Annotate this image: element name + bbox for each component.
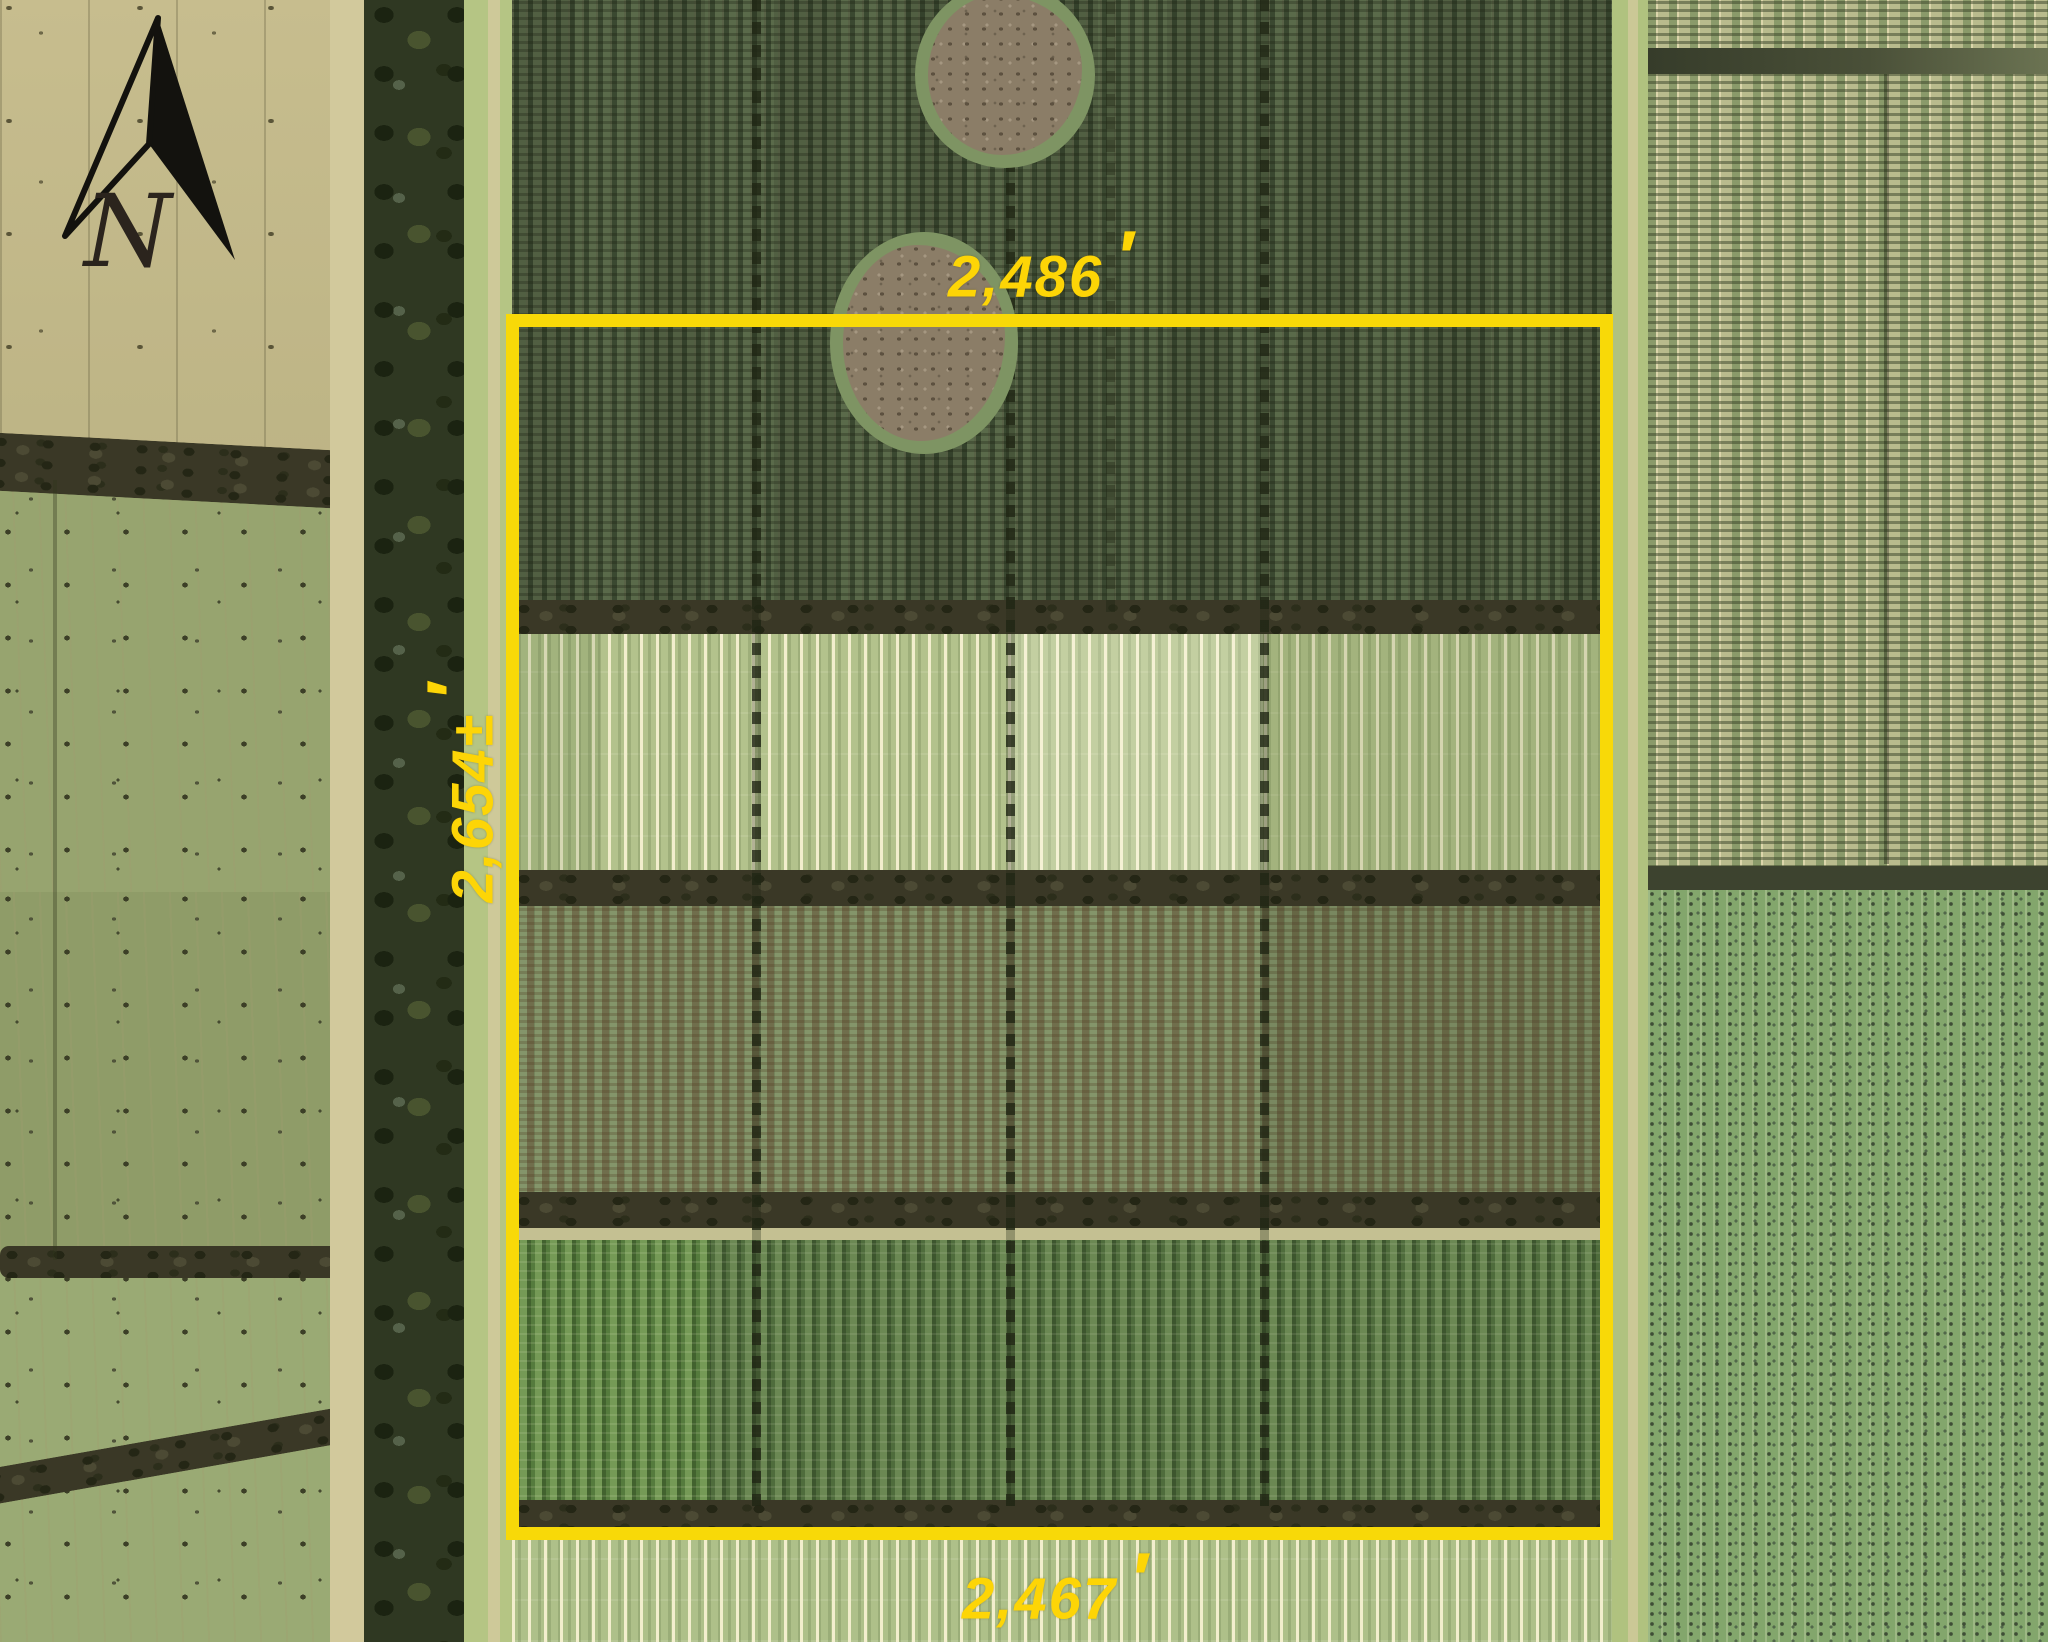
dimension-south-value: 2,467: [962, 1567, 1117, 1632]
orchard-row-shadow-east: [1884, 74, 1889, 864]
property-boundary: [506, 314, 1613, 1540]
orchard-rows-east: [1648, 0, 2048, 868]
field-line-west: [53, 480, 57, 1260]
tree-cluster-north: [928, 0, 1082, 155]
dimension-label-south: 2,467′: [962, 1536, 1149, 1633]
dimension-west-prime: ′: [411, 681, 495, 701]
farm-road-west: [330, 0, 364, 1642]
dimension-west-value: 2,654±: [441, 714, 506, 903]
dimension-label-west: 2,654±′: [421, 577, 485, 1007]
north-letter: N: [82, 173, 175, 290]
north-arrow: N: [52, 4, 267, 294]
dimension-north-prime: ′: [1115, 215, 1135, 299]
dimension-south-prime: ′: [1129, 1537, 1149, 1621]
field-scrub-west-upper: [0, 472, 342, 892]
map-canvas: 2,486′ 2,654±′ 2,467′ N: [0, 0, 2048, 1642]
orchard-dotted-southeast: [1648, 890, 2048, 1642]
dimension-north-value: 2,486: [948, 245, 1103, 310]
dark-road-east-north: [1648, 48, 2048, 74]
farm-track-east: [1628, 0, 1638, 1642]
hedgerow-west-2: [0, 1246, 340, 1278]
field-scrub-west-mid: [0, 892, 342, 1272]
dark-road-east-mid: [1648, 866, 2048, 890]
dimension-label-north: 2,486′: [948, 214, 1135, 311]
